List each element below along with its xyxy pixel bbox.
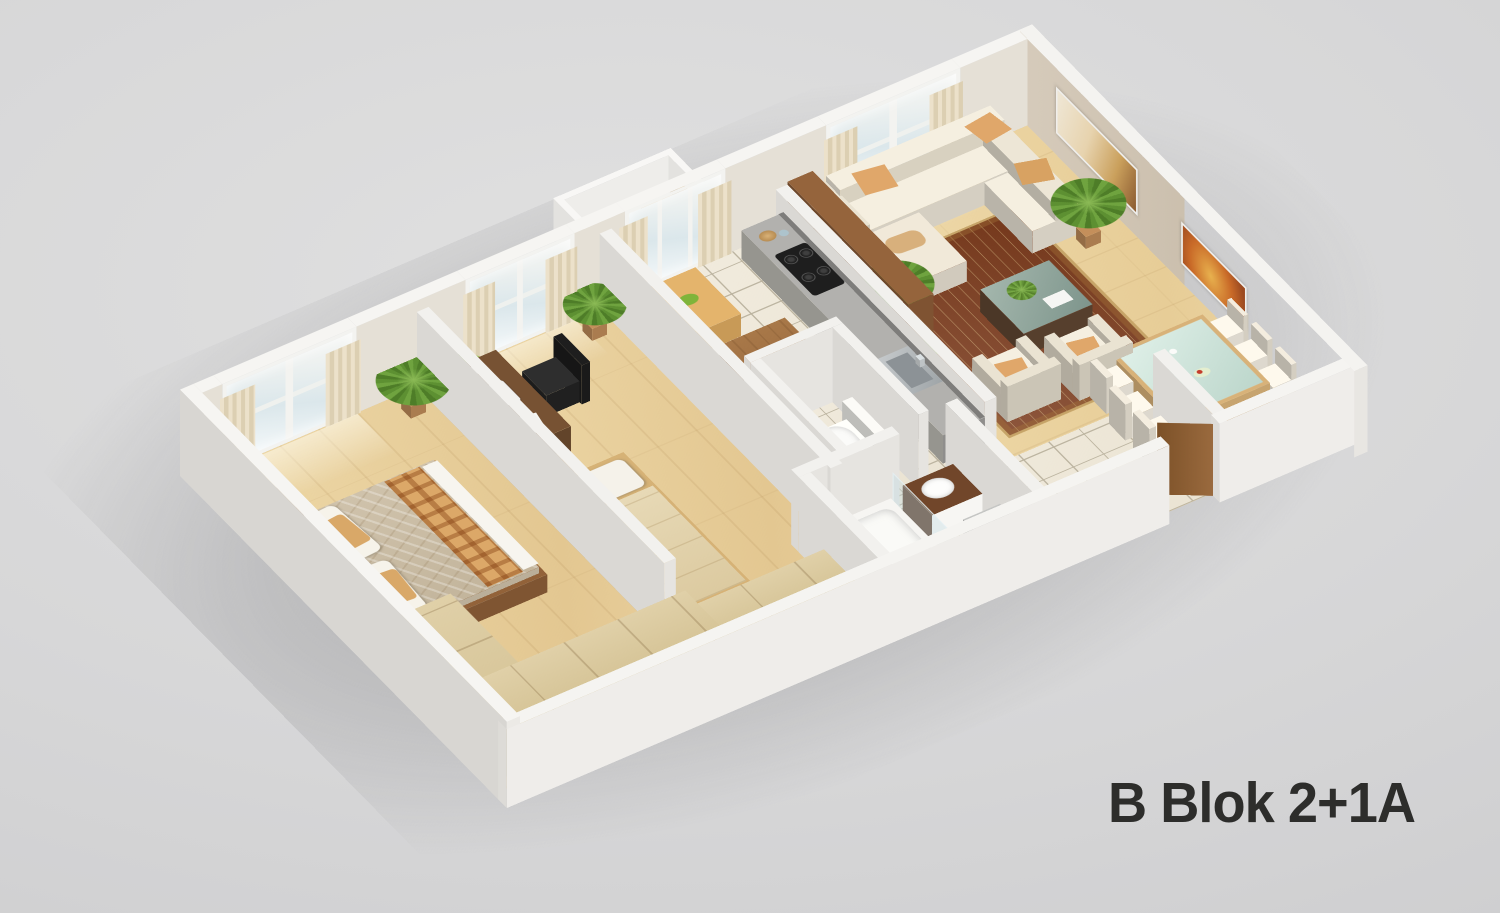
- office-chair-back-front: [582, 362, 590, 405]
- bathroom-wall-side: [791, 469, 799, 552]
- floorplan-render: B Blok 2+1A: [0, 0, 1500, 913]
- curtain: [326, 339, 361, 428]
- curtain: [545, 246, 577, 333]
- dining-chair-back-front: [1125, 402, 1132, 441]
- plan-title: B Blok 2+1A: [1108, 770, 1415, 836]
- curtain: [698, 180, 732, 268]
- east-wall-front: [1354, 365, 1367, 457]
